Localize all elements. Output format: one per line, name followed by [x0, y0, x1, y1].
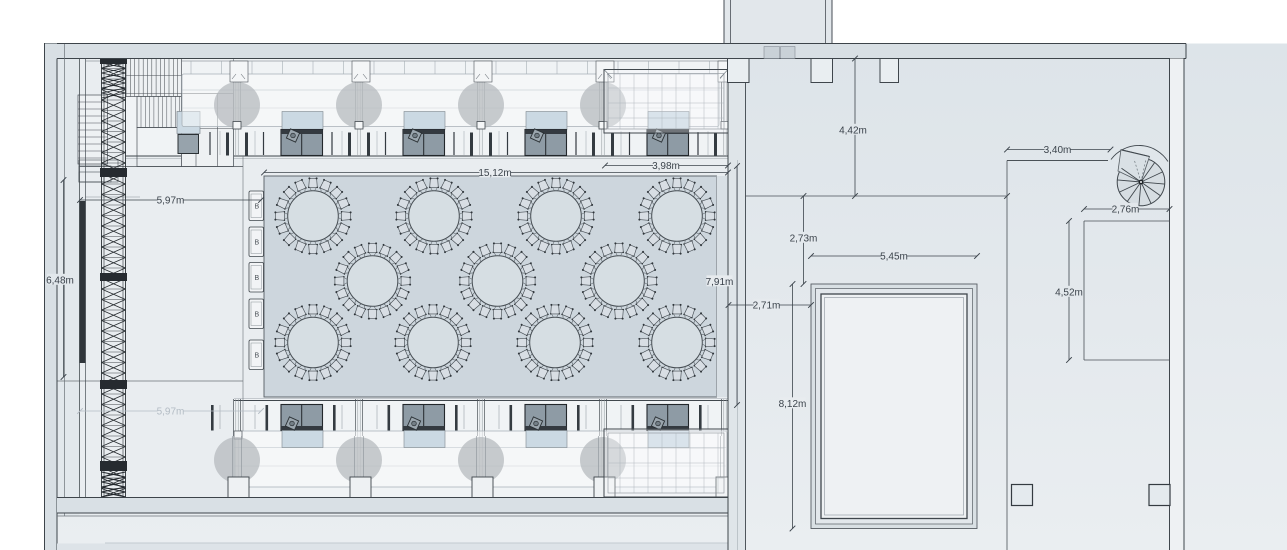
svg-text:7,91m: 7,91m — [706, 277, 734, 288]
svg-text:4,52m: 4,52m — [1055, 287, 1083, 298]
svg-text:5,45m: 5,45m — [880, 251, 908, 262]
svg-text:3,98m: 3,98m — [652, 161, 680, 172]
svg-text:B: B — [254, 311, 259, 318]
svg-text:15,12m: 15,12m — [478, 168, 511, 179]
svg-text:B: B — [254, 352, 259, 359]
svg-text:2,76m: 2,76m — [1112, 204, 1140, 215]
svg-text:B: B — [254, 203, 259, 210]
svg-text:5,97m: 5,97m — [157, 406, 185, 417]
svg-text:B: B — [254, 275, 259, 282]
svg-text:4,42m: 4,42m — [839, 125, 867, 136]
svg-text:B: B — [254, 239, 259, 246]
svg-text:8,12m: 8,12m — [779, 399, 807, 410]
svg-text:3,40m: 3,40m — [1044, 145, 1072, 156]
svg-text:2,73m: 2,73m — [790, 233, 818, 244]
svg-text:5,97m: 5,97m — [157, 195, 185, 206]
svg-text:2,71m: 2,71m — [753, 300, 781, 311]
svg-text:6,48m: 6,48m — [46, 275, 74, 286]
